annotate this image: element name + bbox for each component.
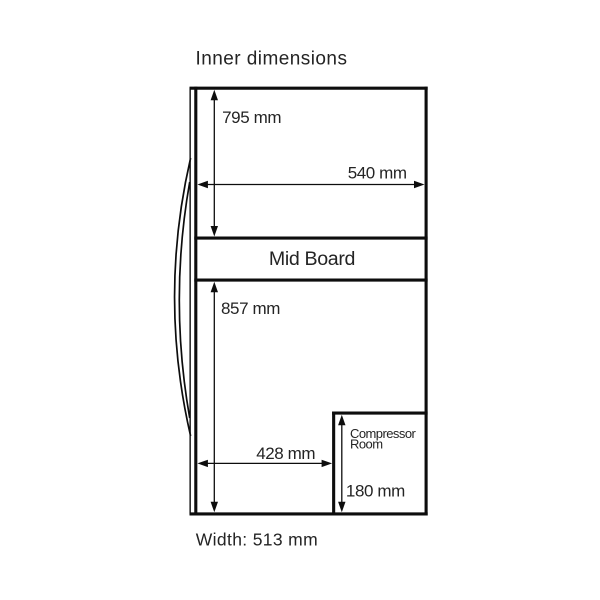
svg-text:857 mm: 857 mm bbox=[221, 299, 280, 318]
svg-text:Mid Board: Mid Board bbox=[269, 248, 355, 270]
svg-text:180 mm: 180 mm bbox=[346, 481, 405, 500]
svg-text:Inner dimensions: Inner dimensions bbox=[196, 49, 348, 70]
svg-text:540 mm: 540 mm bbox=[348, 164, 407, 183]
svg-text:428 mm: 428 mm bbox=[256, 444, 315, 463]
svg-text:Room: Room bbox=[350, 437, 382, 452]
svg-text:Width: 513 mm: Width: 513 mm bbox=[196, 530, 318, 550]
svg-text:795 mm: 795 mm bbox=[222, 108, 281, 127]
